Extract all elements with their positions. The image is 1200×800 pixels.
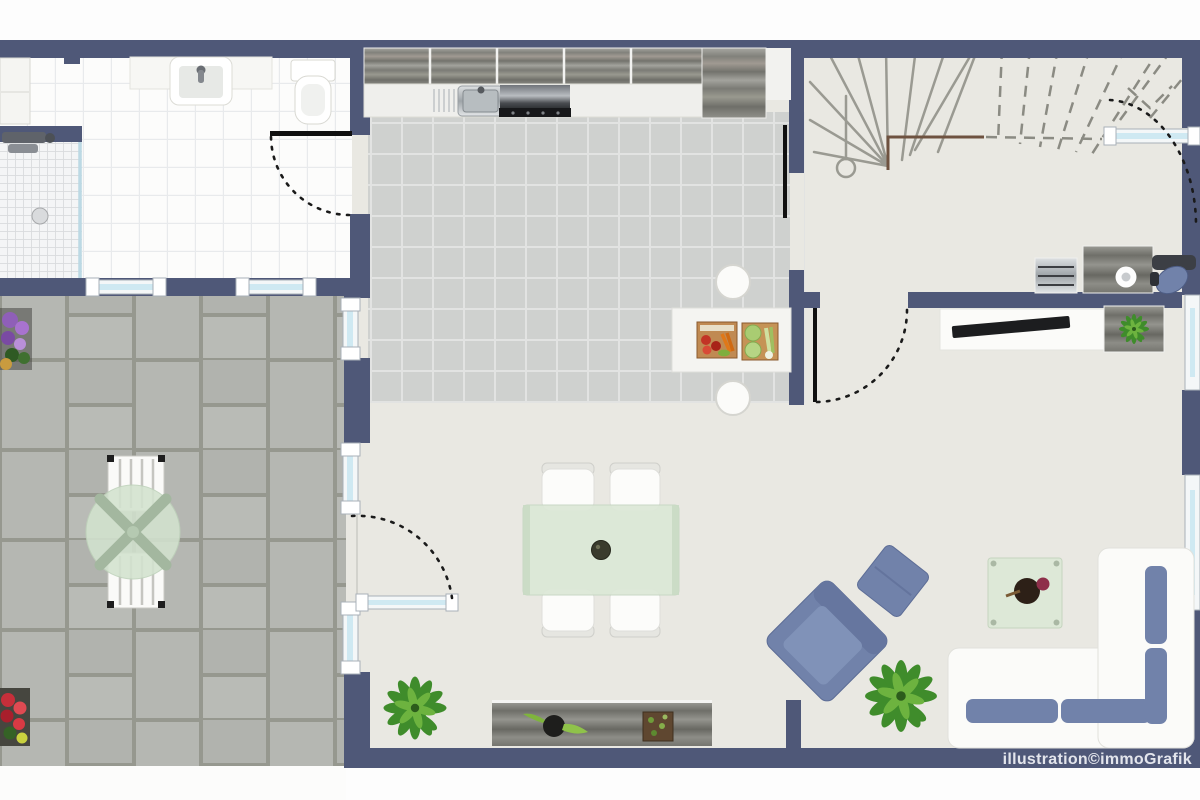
entry-door-window bbox=[1104, 127, 1200, 145]
back-cushion bbox=[1145, 566, 1167, 644]
watermark: illustration©immoGrafik bbox=[1003, 751, 1192, 768]
washbasin bbox=[170, 57, 232, 105]
wall-segment bbox=[344, 278, 370, 298]
window bbox=[236, 278, 316, 296]
wall-segment bbox=[1182, 390, 1200, 475]
bath-cabinet bbox=[0, 58, 30, 124]
wall-stub bbox=[64, 40, 80, 64]
vegetable-crate-green bbox=[742, 323, 778, 360]
wall-segment bbox=[344, 358, 370, 443]
shower-drain bbox=[32, 208, 48, 224]
dining-table bbox=[523, 505, 679, 595]
toilet bbox=[291, 60, 335, 124]
door-leaf bbox=[270, 131, 352, 136]
drawer-unit bbox=[1035, 258, 1077, 293]
flower-planter-red bbox=[0, 688, 30, 746]
door-leaf bbox=[813, 308, 817, 402]
door-leaf bbox=[783, 125, 787, 218]
wall-segment bbox=[789, 40, 804, 173]
dining-chair bbox=[542, 589, 594, 637]
dining-chair bbox=[610, 589, 660, 637]
bar-stool bbox=[716, 265, 750, 299]
table-bowl bbox=[592, 541, 611, 560]
decor-flower bbox=[1037, 578, 1050, 591]
seat-cushion bbox=[1061, 699, 1151, 723]
shower-fixture bbox=[2, 132, 46, 143]
window bbox=[86, 278, 166, 296]
dining-chair bbox=[610, 463, 660, 511]
kitchen-wall-cabinets bbox=[364, 48, 702, 86]
shower-fixture-bar bbox=[8, 144, 38, 153]
window bbox=[341, 602, 360, 674]
floor-plan: illustration©immoGrafik bbox=[0, 0, 1200, 800]
planter-box bbox=[643, 712, 673, 741]
coffee-table bbox=[988, 558, 1062, 628]
terrace-door bbox=[341, 443, 360, 514]
cooktop bbox=[499, 85, 571, 117]
tall-cabinet bbox=[702, 48, 766, 118]
dining-chair bbox=[542, 463, 594, 511]
floor-plan-screenshot: illustration©immoGrafik bbox=[0, 0, 1200, 800]
wall-segment bbox=[1182, 40, 1200, 128]
corner-window bbox=[356, 594, 458, 611]
counter-end-panel bbox=[766, 48, 791, 100]
flower-planter-purple bbox=[0, 308, 32, 370]
hall-doorway-floor bbox=[790, 173, 804, 270]
tv-area bbox=[940, 306, 1164, 352]
kitchen-sink bbox=[458, 86, 503, 116]
seat-cushion bbox=[966, 699, 1058, 723]
vase bbox=[543, 715, 565, 737]
sideboard bbox=[492, 700, 712, 746]
desk bbox=[1083, 246, 1153, 293]
wall-stub bbox=[786, 700, 801, 748]
terrace-table bbox=[86, 485, 180, 579]
vegetable-crate-red bbox=[697, 322, 737, 358]
wall-stub bbox=[804, 292, 820, 308]
terrace-edge bbox=[0, 766, 346, 800]
window bbox=[341, 298, 360, 360]
back-cushion bbox=[1145, 648, 1167, 724]
bar-stool bbox=[716, 381, 750, 415]
window bbox=[1185, 295, 1200, 390]
